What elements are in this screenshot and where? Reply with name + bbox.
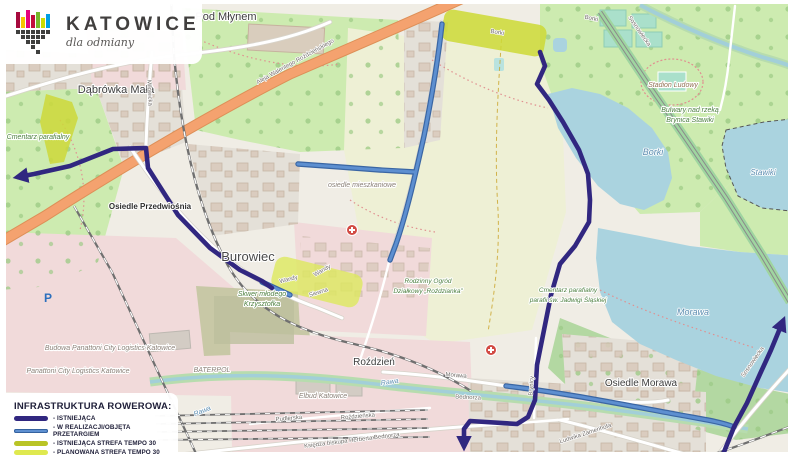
place-label: Stadion Ludowy — [648, 82, 698, 89]
place-label: Bulwary nad rzeką — [661, 107, 719, 114]
map-poster: P Pod Młynem Dąbrówka Mała Osiedle Przed… — [0, 0, 800, 461]
map-margin-right — [788, 0, 800, 461]
water-label: Stawiki — [750, 168, 776, 177]
water-label: Morawa — [677, 307, 709, 317]
legend: INFRASTRUKTURA ROWEROWA: - ISTNIEJĄCA - … — [0, 393, 178, 458]
legend-label: - ISTNIEJĄCA STREFA TEMPO 30 — [53, 440, 156, 447]
legend-item-tempo30-planned: - PLANOWANA STREFA TEMPO 30 — [14, 449, 178, 456]
legend-item-in-progress: - W REALIZACJI/OBJĘTA PRZETARGIEM — [14, 424, 178, 438]
legend-label: - PLANOWANA STREFA TEMPO 30 — [53, 449, 160, 456]
legend-swatch-tempo30-planned — [14, 450, 48, 455]
place-label: Burowiec — [221, 249, 275, 264]
place-label: Skwer młodego — [238, 291, 286, 298]
legend-label: - W REALIZACJI/OBJĘTA PRZETARGIEM — [53, 424, 178, 438]
place-label: parafii św. Jadwigi Śląskiej — [529, 295, 607, 304]
place-label: Roździeń — [353, 357, 395, 368]
map-canvas[interactable]: P Pod Młynem Dąbrówka Mała Osiedle Przed… — [0, 0, 800, 461]
place-label: Elbud Katowice — [299, 393, 347, 400]
place-label: Brynica Stawiki — [666, 117, 714, 124]
katowice-logo-icon — [14, 8, 54, 56]
place-label: Rodzinny Ogród — [405, 278, 452, 285]
logo-panel: KATOWICE dla odmiany — [0, 0, 202, 64]
logo-title: KATOWICE — [66, 15, 200, 35]
place-label: BATERPOL — [194, 367, 231, 374]
place-label: Budowa Panattoni City Logistics Katowice — [45, 345, 175, 352]
water-label: Borki — [643, 147, 665, 157]
parking-icon: P — [44, 291, 52, 305]
place-label: Panattoni City Logistics Katowice — [26, 368, 129, 375]
legend-swatch-tempo30-existing — [14, 441, 48, 446]
hospital-icon — [347, 225, 358, 236]
place-label: Dąbrówka Mała — [78, 84, 155, 96]
place-label: Osiedle Przedwiośnia — [109, 202, 192, 211]
place-label: Pod Młynem — [195, 11, 256, 23]
legend-label: - ISTNIEJĄCA — [53, 415, 95, 422]
place-label: Cmentarz parafialny — [7, 134, 70, 141]
map-margin-left — [0, 0, 6, 461]
place-label: osiedle mieszkaniowe — [328, 182, 396, 189]
legend-item-tempo30-existing: - ISTNIEJĄCA STREFA TEMPO 30 — [14, 440, 178, 447]
hospital-icon — [486, 345, 497, 356]
place-label: Cmentarz parafialny — [539, 287, 598, 294]
logo-tagline: dla odmiany — [66, 36, 200, 49]
place-label: Osiedle Morawa — [605, 378, 678, 389]
legend-item-existing: - ISTNIEJĄCA — [14, 415, 178, 422]
place-label: Krzysztofka — [244, 301, 280, 308]
legend-title: INFRASTRUKTURA ROWEROWA: — [14, 401, 178, 412]
place-label: Działkowy „Roździanka” — [393, 288, 463, 295]
legend-swatch-existing — [14, 416, 48, 421]
legend-swatch-in-progress — [14, 429, 48, 434]
